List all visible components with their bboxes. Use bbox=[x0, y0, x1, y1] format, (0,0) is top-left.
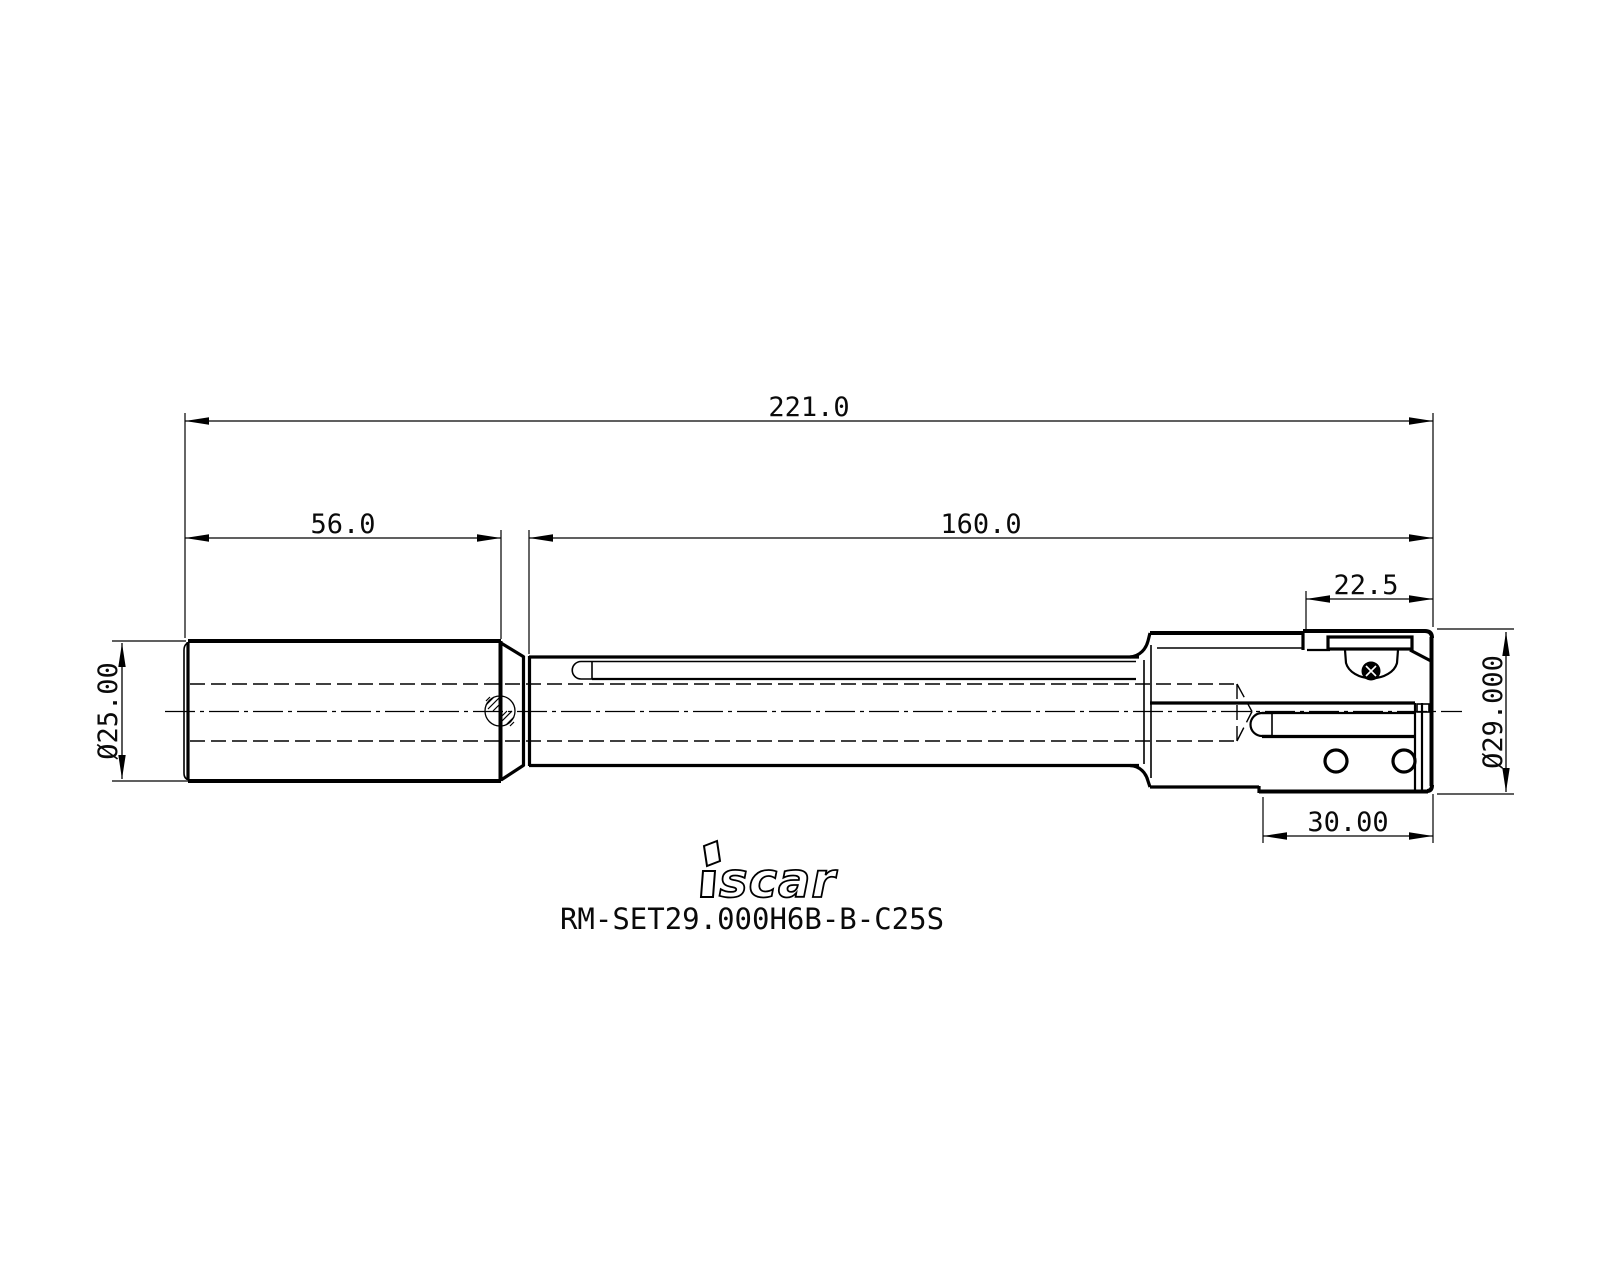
dim-overall-length-label: 221.0 bbox=[768, 392, 849, 423]
iscar-logo: scar bbox=[701, 841, 838, 909]
technical-drawing: 221.0 56.0 160.0 22.5 30.00 Ø25.00 Ø29.0… bbox=[0, 0, 1600, 1280]
dim-overall-length: 221.0 bbox=[185, 392, 1433, 423]
part-number: RM-SET29.000H6B-B-C25S bbox=[560, 902, 944, 936]
dim-head-bottom-length-label: 30.00 bbox=[1307, 807, 1388, 838]
dim-shank-diameter-label: Ø25.00 bbox=[93, 662, 124, 760]
dim-shank-length: 56.0 bbox=[185, 509, 501, 540]
logo-text: scar bbox=[719, 853, 838, 909]
logo-i-stem bbox=[701, 871, 715, 897]
mounting-holes bbox=[1325, 750, 1415, 772]
dim-head-diameter: Ø29.000 bbox=[1478, 632, 1509, 792]
dim-head-diameter-label: Ø29.000 bbox=[1478, 655, 1509, 769]
clamp-plate bbox=[1307, 637, 1431, 661]
logo-i-dot bbox=[704, 841, 720, 866]
dim-body-length-label: 160.0 bbox=[940, 509, 1021, 540]
dim-shank-length-label: 56.0 bbox=[310, 509, 375, 540]
hidden-bore-lines bbox=[190, 684, 1252, 741]
head-slot bbox=[1251, 703, 1430, 790]
dim-shank-diameter: Ø25.00 bbox=[93, 643, 124, 779]
dim-head-bottom-length: 30.00 bbox=[1263, 807, 1433, 838]
dim-body-length: 160.0 bbox=[529, 509, 1433, 540]
clamp-screw bbox=[1345, 650, 1398, 681]
dim-head-top-length: 22.5 bbox=[1306, 570, 1433, 601]
drawing-sheet: 221.0 56.0 160.0 22.5 30.00 Ø25.00 Ø29.0… bbox=[0, 0, 1600, 1280]
extension-lines bbox=[112, 413, 1514, 843]
dim-head-top-length-label: 22.5 bbox=[1333, 570, 1398, 601]
flute-slot bbox=[572, 662, 1136, 680]
